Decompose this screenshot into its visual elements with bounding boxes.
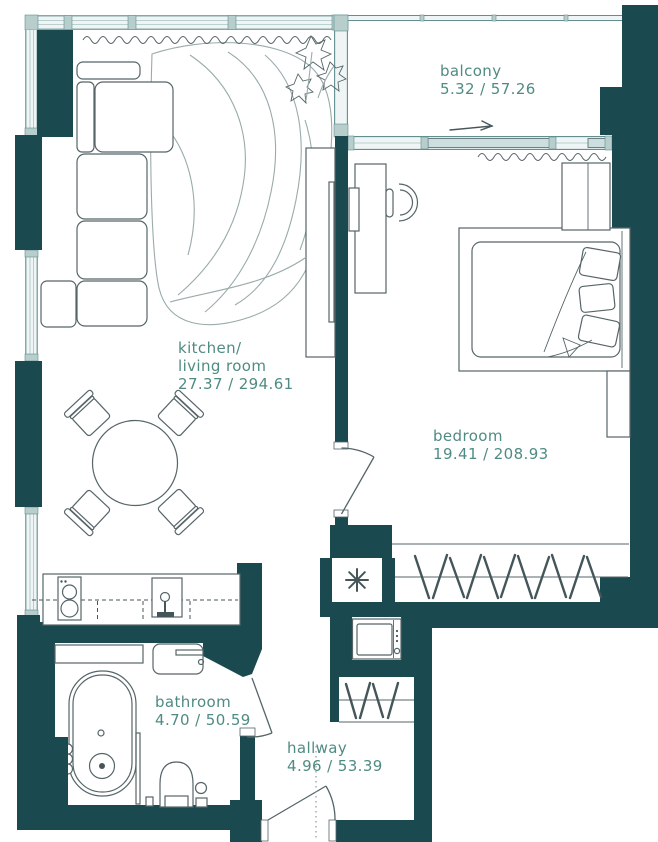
toilet-brush — [146, 797, 153, 806]
room-name: bathroom — [155, 693, 231, 711]
room-area: 19.41 / 208.93 — [433, 445, 549, 463]
window-mullion — [25, 15, 38, 30]
floor-drain — [196, 783, 207, 794]
floor-plan-page: balcony 5.32 / 57.26 kitchen/ living roo… — [0, 0, 658, 842]
balcony-access-arrow — [450, 121, 492, 130]
bedroom-curtain — [478, 154, 606, 161]
room-name: balcony — [440, 62, 502, 80]
bathroom-vanity — [55, 645, 143, 663]
bedroom-closet — [392, 544, 629, 598]
kitchen-counter — [32, 574, 240, 625]
dining-chair — [64, 487, 114, 536]
bedroom-label: bedroom 19.41 / 208.93 — [433, 427, 549, 463]
sliding-door-panel — [428, 139, 550, 148]
bedroom-window-band — [348, 136, 612, 150]
washing-machine — [353, 619, 402, 659]
kitchen-living-label: kitchen/ living room 27.37 / 294.61 — [178, 339, 294, 393]
dining-table — [93, 421, 178, 506]
room-name: hallway — [287, 739, 347, 757]
room-name: bedroom — [433, 427, 503, 445]
left-window-1 — [25, 30, 38, 137]
living-room-rug — [151, 43, 332, 325]
cooktop — [58, 577, 81, 620]
dining-set — [64, 389, 205, 536]
room-area: 4.70 / 50.59 — [155, 711, 251, 729]
towel-radiator — [68, 744, 73, 774]
left-window-2 — [25, 250, 38, 361]
living-room-curtain — [83, 37, 331, 44]
dining-chair — [64, 389, 114, 438]
desk-chair — [386, 184, 418, 221]
room-area: 27.37 / 294.61 — [178, 375, 294, 393]
entrance-door — [268, 786, 335, 820]
balcony-label: balcony 5.32 / 57.26 — [440, 62, 536, 98]
asterisk-icon — [346, 569, 368, 591]
bed — [459, 228, 630, 371]
tv-console — [306, 148, 335, 357]
left-window-3 — [25, 507, 38, 617]
bedroom-door — [342, 448, 375, 514]
floor-plan-canvas: balcony 5.32 / 57.26 kitchen/ living roo… — [0, 0, 658, 842]
room-name: living room — [178, 357, 266, 375]
bathroom-label: bathroom 4.70 / 50.59 — [155, 693, 251, 729]
tv-screen — [329, 182, 334, 322]
wardrobe — [562, 163, 610, 230]
toilet — [160, 762, 193, 807]
desk — [349, 164, 386, 293]
bathtub — [69, 671, 136, 796]
desk-monitor — [349, 188, 359, 231]
nightstand — [607, 371, 630, 437]
bathroom-sink — [153, 644, 204, 674]
room-area: 4.96 / 53.39 — [287, 757, 383, 775]
hallway-closet — [339, 683, 414, 722]
hallway-label: hallway 4.96 / 53.39 — [287, 739, 383, 775]
utility-shaft — [346, 569, 368, 591]
kitchen-sink — [152, 578, 182, 617]
room-name: kitchen/ — [178, 339, 242, 357]
room-area: 5.32 / 57.26 — [440, 80, 536, 98]
